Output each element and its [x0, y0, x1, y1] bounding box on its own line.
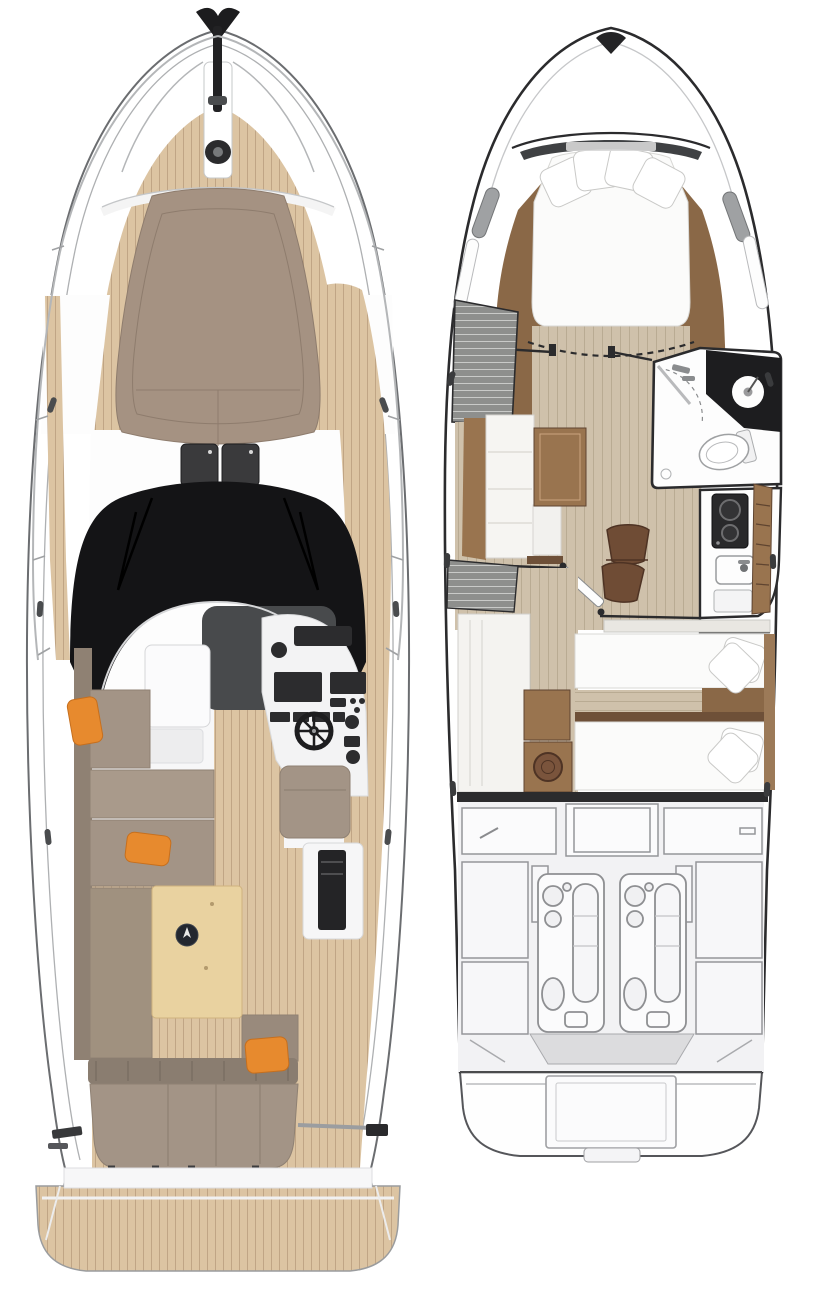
bow-wardrobe — [452, 300, 518, 425]
bed-shelf-step — [604, 620, 770, 632]
helm-display-main — [274, 672, 322, 702]
helm-display-side — [330, 672, 366, 694]
helm-throttle-base — [346, 750, 360, 764]
bench-seat — [90, 1084, 298, 1168]
port-cabinet — [145, 645, 210, 727]
galley-module — [714, 590, 752, 612]
helm-panel-small — [344, 736, 360, 747]
hatch-latch — [249, 450, 253, 454]
sink-tap — [738, 560, 750, 564]
laundry-porthole — [534, 753, 562, 781]
settee-end — [533, 505, 561, 555]
orange-pillow — [245, 1036, 290, 1074]
foredeck-sunpad — [116, 189, 320, 447]
deck-hatch-stbd — [222, 444, 259, 486]
port-gate-fitting-2 — [48, 1143, 68, 1149]
head-compartment — [652, 348, 781, 488]
aft-lockers — [462, 804, 762, 856]
helm-screen-top — [294, 626, 352, 646]
cockpit-table — [152, 886, 242, 1018]
windlass-capstan — [213, 147, 223, 157]
engine-room-bulkhead — [457, 792, 768, 802]
helm-gauge — [271, 642, 287, 658]
galley-stowage — [752, 484, 772, 614]
door-jamb — [549, 344, 556, 356]
hull-trim-stbd — [764, 634, 775, 790]
lower-deck-plan — [444, 28, 781, 1162]
helm-compass — [345, 715, 359, 729]
swim-platform-lower — [460, 1072, 762, 1162]
bed-divider-trim — [575, 712, 769, 722]
platform-center-hatch — [546, 1076, 676, 1148]
gate-latch — [366, 1124, 388, 1136]
salon-cabinet-edge — [527, 556, 563, 564]
engine-room-step — [530, 1034, 694, 1064]
between-bed-shelf — [575, 690, 710, 712]
midcabin-wardrobe — [458, 614, 530, 792]
engine-stbd — [620, 874, 686, 1032]
salon-table — [534, 428, 586, 506]
midcabin-cabinet — [524, 690, 570, 740]
sink-faucet — [740, 564, 748, 572]
burner — [722, 525, 738, 541]
hatch-latch — [208, 450, 212, 454]
table-dot — [204, 966, 208, 970]
settee-cushion — [90, 888, 152, 1058]
swim-platform-main — [36, 1186, 400, 1271]
main-deck-plan — [27, 8, 409, 1271]
engine-port — [538, 874, 604, 1032]
transom-band — [64, 1168, 372, 1188]
door-jamb — [608, 346, 615, 358]
burner — [720, 500, 740, 520]
deck-hatch-port — [181, 444, 218, 486]
orange-pillow — [124, 831, 171, 866]
hull-locker — [447, 560, 518, 612]
settee-cushion — [90, 770, 214, 818]
table-dot — [210, 902, 214, 906]
platform-step — [584, 1148, 640, 1162]
port-step — [145, 729, 203, 763]
wet-bar — [303, 843, 363, 939]
copilot-seat — [280, 766, 350, 838]
salon-settee — [486, 415, 534, 558]
galley — [700, 484, 781, 618]
engine-room — [457, 792, 768, 1072]
yacht-floorplan-canvas — [0, 0, 821, 1300]
helm-keypad — [330, 698, 346, 707]
steering-wheel — [297, 714, 331, 748]
bow-roller — [208, 96, 227, 105]
cooktop-knob — [716, 541, 720, 545]
cockpit-table-group — [152, 886, 242, 1018]
floorplan-drawing — [0, 0, 821, 1300]
